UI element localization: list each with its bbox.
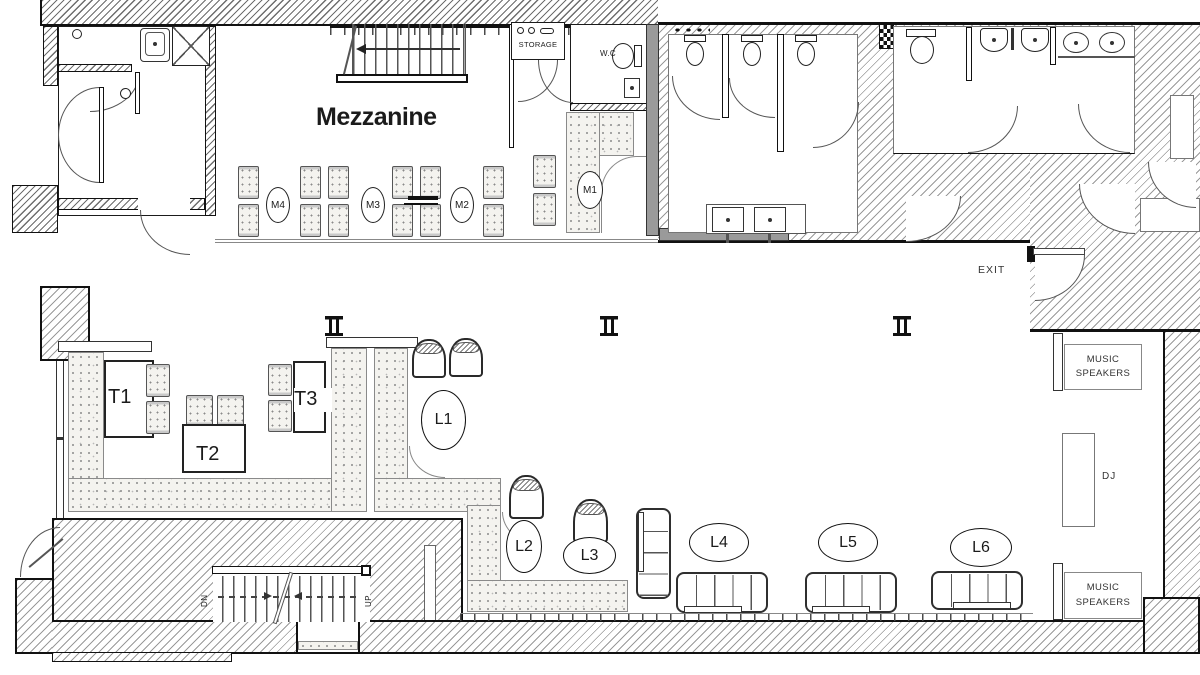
mezz-seat bbox=[238, 166, 259, 199]
chair-icon bbox=[412, 339, 446, 378]
mezzanine-title: Mezzanine bbox=[316, 103, 476, 133]
t1-seat bbox=[146, 401, 170, 434]
exterior-wall-top bbox=[40, 0, 658, 26]
door-knob-icon bbox=[120, 88, 131, 99]
bench-cushion-lines bbox=[679, 575, 765, 610]
stairs-arrowhead-left-icon bbox=[294, 592, 302, 600]
mezz-table-label-m4: M4 bbox=[266, 187, 290, 223]
sofa-back-bar bbox=[638, 512, 644, 572]
banquette-cap-left bbox=[58, 341, 152, 352]
accessible-toilet-bowl-icon bbox=[910, 36, 934, 64]
basin-dot bbox=[768, 218, 772, 222]
duct-shaft-x bbox=[172, 26, 210, 66]
mezz-seat bbox=[392, 166, 413, 199]
bench-l6-foot bbox=[953, 602, 1011, 609]
t1-seat bbox=[146, 364, 170, 397]
urinal-divider bbox=[1011, 28, 1014, 50]
basin-dot bbox=[726, 218, 730, 222]
wc-label: W.C bbox=[600, 49, 630, 58]
mezz-seat bbox=[328, 204, 349, 237]
door-leaf-entrance bbox=[99, 87, 104, 183]
mezz-seat bbox=[238, 204, 259, 237]
door-arc-lobby bbox=[140, 210, 190, 255]
gents-toilet-tank-icon bbox=[741, 35, 763, 42]
mezz-seat bbox=[300, 166, 321, 199]
window-left bbox=[56, 361, 64, 527]
stairs-arrowhead-right-icon bbox=[264, 592, 272, 600]
column-symbol bbox=[325, 316, 343, 336]
gents-toilet-tank-icon bbox=[684, 35, 706, 42]
column-symbol bbox=[600, 316, 618, 336]
music-speakers-bottom-box: MUSIC SPEAKERS bbox=[1064, 572, 1142, 619]
mezz-table-label-m1: M1 bbox=[577, 171, 603, 209]
stairs-up-label: UP bbox=[364, 585, 378, 607]
urinal-icon bbox=[1021, 28, 1049, 52]
lounge-label-l6: L6 bbox=[950, 528, 1012, 567]
vestibule-bottom-door-gap bbox=[138, 197, 190, 211]
storage-fixture-3 bbox=[540, 28, 554, 34]
gents-toilet-bowl-icon bbox=[797, 42, 815, 66]
gents-cubicle-partition bbox=[777, 34, 784, 152]
mezz-table-label-m3: M3 bbox=[361, 187, 385, 223]
music-speakers-top-label: MUSIC SPEAKERS bbox=[1065, 353, 1141, 382]
basin-dot bbox=[1074, 41, 1078, 45]
music-speakers-top-box: MUSIC SPEAKERS bbox=[1064, 344, 1142, 390]
basin-stem bbox=[726, 233, 729, 243]
wc-bottom-wall bbox=[570, 103, 658, 111]
bench-l5-foot bbox=[812, 606, 870, 613]
right-wall-strip bbox=[1163, 332, 1200, 597]
banquette-cap-right bbox=[326, 337, 418, 348]
ladies-partition bbox=[966, 27, 972, 81]
chair-icon bbox=[449, 338, 483, 377]
stairs-rail-endcap bbox=[361, 565, 371, 576]
banquette-right-arm bbox=[331, 348, 367, 512]
stairs-passage-mat bbox=[298, 641, 358, 650]
dj-booth bbox=[1062, 433, 1095, 527]
mezzanine-dark-wall-vert bbox=[646, 24, 659, 236]
wall-fixture-icon bbox=[72, 29, 82, 39]
stair-wall-pilaster bbox=[424, 545, 436, 622]
sink-faucet-dot bbox=[153, 42, 157, 46]
exterior-wall-bottom-step bbox=[52, 652, 232, 662]
ladies-basin-icon bbox=[1063, 32, 1089, 53]
gents-basin-icon bbox=[712, 207, 744, 232]
pier-left-bottom bbox=[15, 578, 55, 654]
chair-icon bbox=[509, 475, 544, 519]
mezz-table-bar bbox=[408, 196, 438, 200]
vestibule-partition-wall bbox=[58, 64, 132, 72]
mezzanine-floor-edge bbox=[215, 239, 658, 243]
mezz-table-bar bbox=[404, 203, 438, 205]
urinal-dot bbox=[1033, 38, 1037, 42]
stairs-walk-line bbox=[218, 596, 360, 598]
door-arc-bottom-left bbox=[20, 527, 60, 577]
lounge-label-l5: L5 bbox=[818, 523, 878, 562]
wc-toilet-tank-icon bbox=[634, 45, 642, 67]
storage-fixture-1 bbox=[517, 27, 524, 34]
urinal-icon bbox=[980, 28, 1008, 52]
ladies-partition bbox=[1050, 27, 1056, 65]
banquette-bottom-arm bbox=[68, 478, 367, 512]
urinal-dot bbox=[992, 38, 996, 42]
table-label-t2: T2 bbox=[196, 443, 232, 467]
t2-seat bbox=[186, 395, 213, 426]
exterior-wall-bottom bbox=[52, 620, 1143, 654]
door-leaf-vestibule bbox=[135, 72, 140, 114]
duct-checker-block bbox=[879, 24, 894, 49]
lounge-label-l3: L3 bbox=[563, 537, 616, 574]
basin-dot bbox=[630, 86, 634, 90]
exit-label: EXIT bbox=[978, 264, 1024, 278]
gents-toilet-bowl-icon bbox=[743, 42, 761, 66]
speaker-stand bbox=[1053, 563, 1063, 620]
column-symbol bbox=[893, 316, 911, 336]
mezzanine-stairs-rail bbox=[336, 74, 468, 83]
stairs-arrowhead-icon bbox=[356, 44, 366, 54]
gents-toilet-tank-icon bbox=[795, 35, 817, 42]
mezz-seat bbox=[328, 166, 349, 199]
stairs-dn-label: DN bbox=[200, 585, 214, 607]
lounge-label-l1: L1 bbox=[421, 390, 466, 450]
storage-label: STORAGE bbox=[511, 40, 565, 49]
mezz-seat bbox=[392, 204, 413, 237]
music-speakers-bottom-label: MUSIC SPEAKERS bbox=[1065, 581, 1141, 610]
walkway-band-h2 bbox=[467, 580, 628, 612]
mezz-seat bbox=[483, 166, 504, 199]
door-arc-wc bbox=[538, 60, 573, 103]
main-stairs-treads bbox=[222, 576, 357, 622]
walkway-fillet-1 bbox=[409, 446, 445, 478]
lounge-label-l2: L2 bbox=[506, 520, 542, 573]
window-mullion bbox=[56, 437, 64, 440]
floor-plan-canvas: Mezzanine STORAGE W.C M4 M3 M2 M1 bbox=[0, 0, 1200, 675]
stairs-arrow-line bbox=[366, 48, 460, 50]
table-label-t3: T3 bbox=[294, 388, 332, 412]
gents-cubicle-partition bbox=[722, 34, 729, 118]
bench-l4-foot bbox=[684, 606, 742, 613]
mezz-seat bbox=[533, 193, 556, 226]
mezz-seat bbox=[420, 204, 441, 237]
ladies-basin-icon bbox=[1099, 32, 1125, 53]
basin-stem bbox=[768, 233, 771, 243]
t3-seat bbox=[268, 364, 292, 396]
t2-seat bbox=[217, 395, 244, 426]
storage-fixture-2 bbox=[528, 27, 535, 34]
dj-label: DJ bbox=[1102, 471, 1128, 485]
ladies-counter-line bbox=[1058, 56, 1135, 58]
wall-entrance-stub bbox=[12, 185, 58, 233]
lounge-label-l4: L4 bbox=[689, 523, 749, 562]
gents-hooks-row bbox=[672, 26, 710, 34]
bench-cushion-lines bbox=[808, 575, 894, 610]
exit-door-panel bbox=[1033, 248, 1085, 255]
speaker-stand bbox=[1053, 333, 1063, 391]
bottom-right-corner-wall bbox=[1143, 597, 1200, 654]
t3-seat bbox=[268, 400, 292, 432]
basin-dot bbox=[1110, 41, 1114, 45]
wc-room bbox=[570, 24, 658, 106]
mezz-seat bbox=[533, 155, 556, 188]
wc-basin-icon bbox=[624, 78, 640, 98]
mezz-seat bbox=[300, 204, 321, 237]
right-shaft bbox=[1170, 95, 1194, 159]
floor-edge-ticks bbox=[460, 613, 1033, 621]
walkway-band-v3 bbox=[467, 505, 501, 585]
table-label-t1: T1 bbox=[108, 386, 142, 410]
mezz-seat bbox=[420, 166, 441, 199]
mezz-seat bbox=[483, 204, 504, 237]
wall-left-upper bbox=[43, 26, 58, 86]
gents-basin-icon bbox=[754, 207, 786, 232]
gents-toilet-bowl-icon bbox=[686, 42, 704, 66]
mezz-table-label-m2: M2 bbox=[450, 187, 474, 223]
